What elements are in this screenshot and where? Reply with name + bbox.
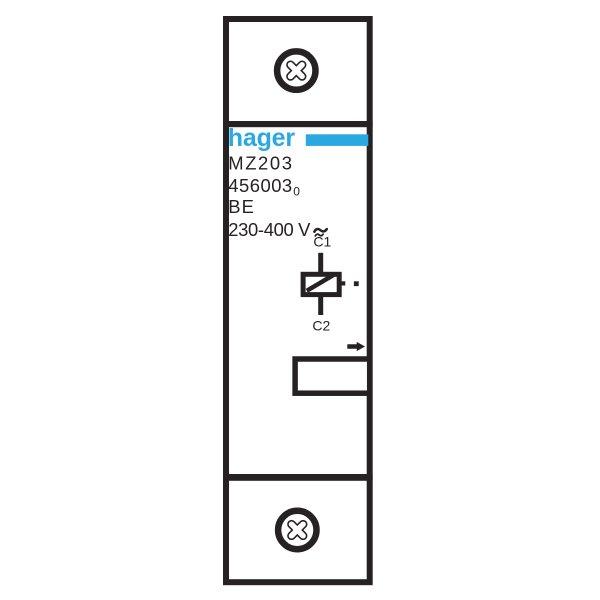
svg-text:BE: BE bbox=[228, 196, 255, 217]
svg-text:0: 0 bbox=[293, 184, 300, 198]
svg-text:MZ203: MZ203 bbox=[228, 153, 293, 174]
svg-text:230-400 V: 230-400 V bbox=[228, 219, 311, 240]
svg-text:hager: hager bbox=[228, 124, 296, 152]
svg-text:C1: C1 bbox=[313, 234, 331, 250]
svg-text:C2: C2 bbox=[312, 318, 330, 334]
svg-text:456003: 456003 bbox=[228, 175, 292, 196]
